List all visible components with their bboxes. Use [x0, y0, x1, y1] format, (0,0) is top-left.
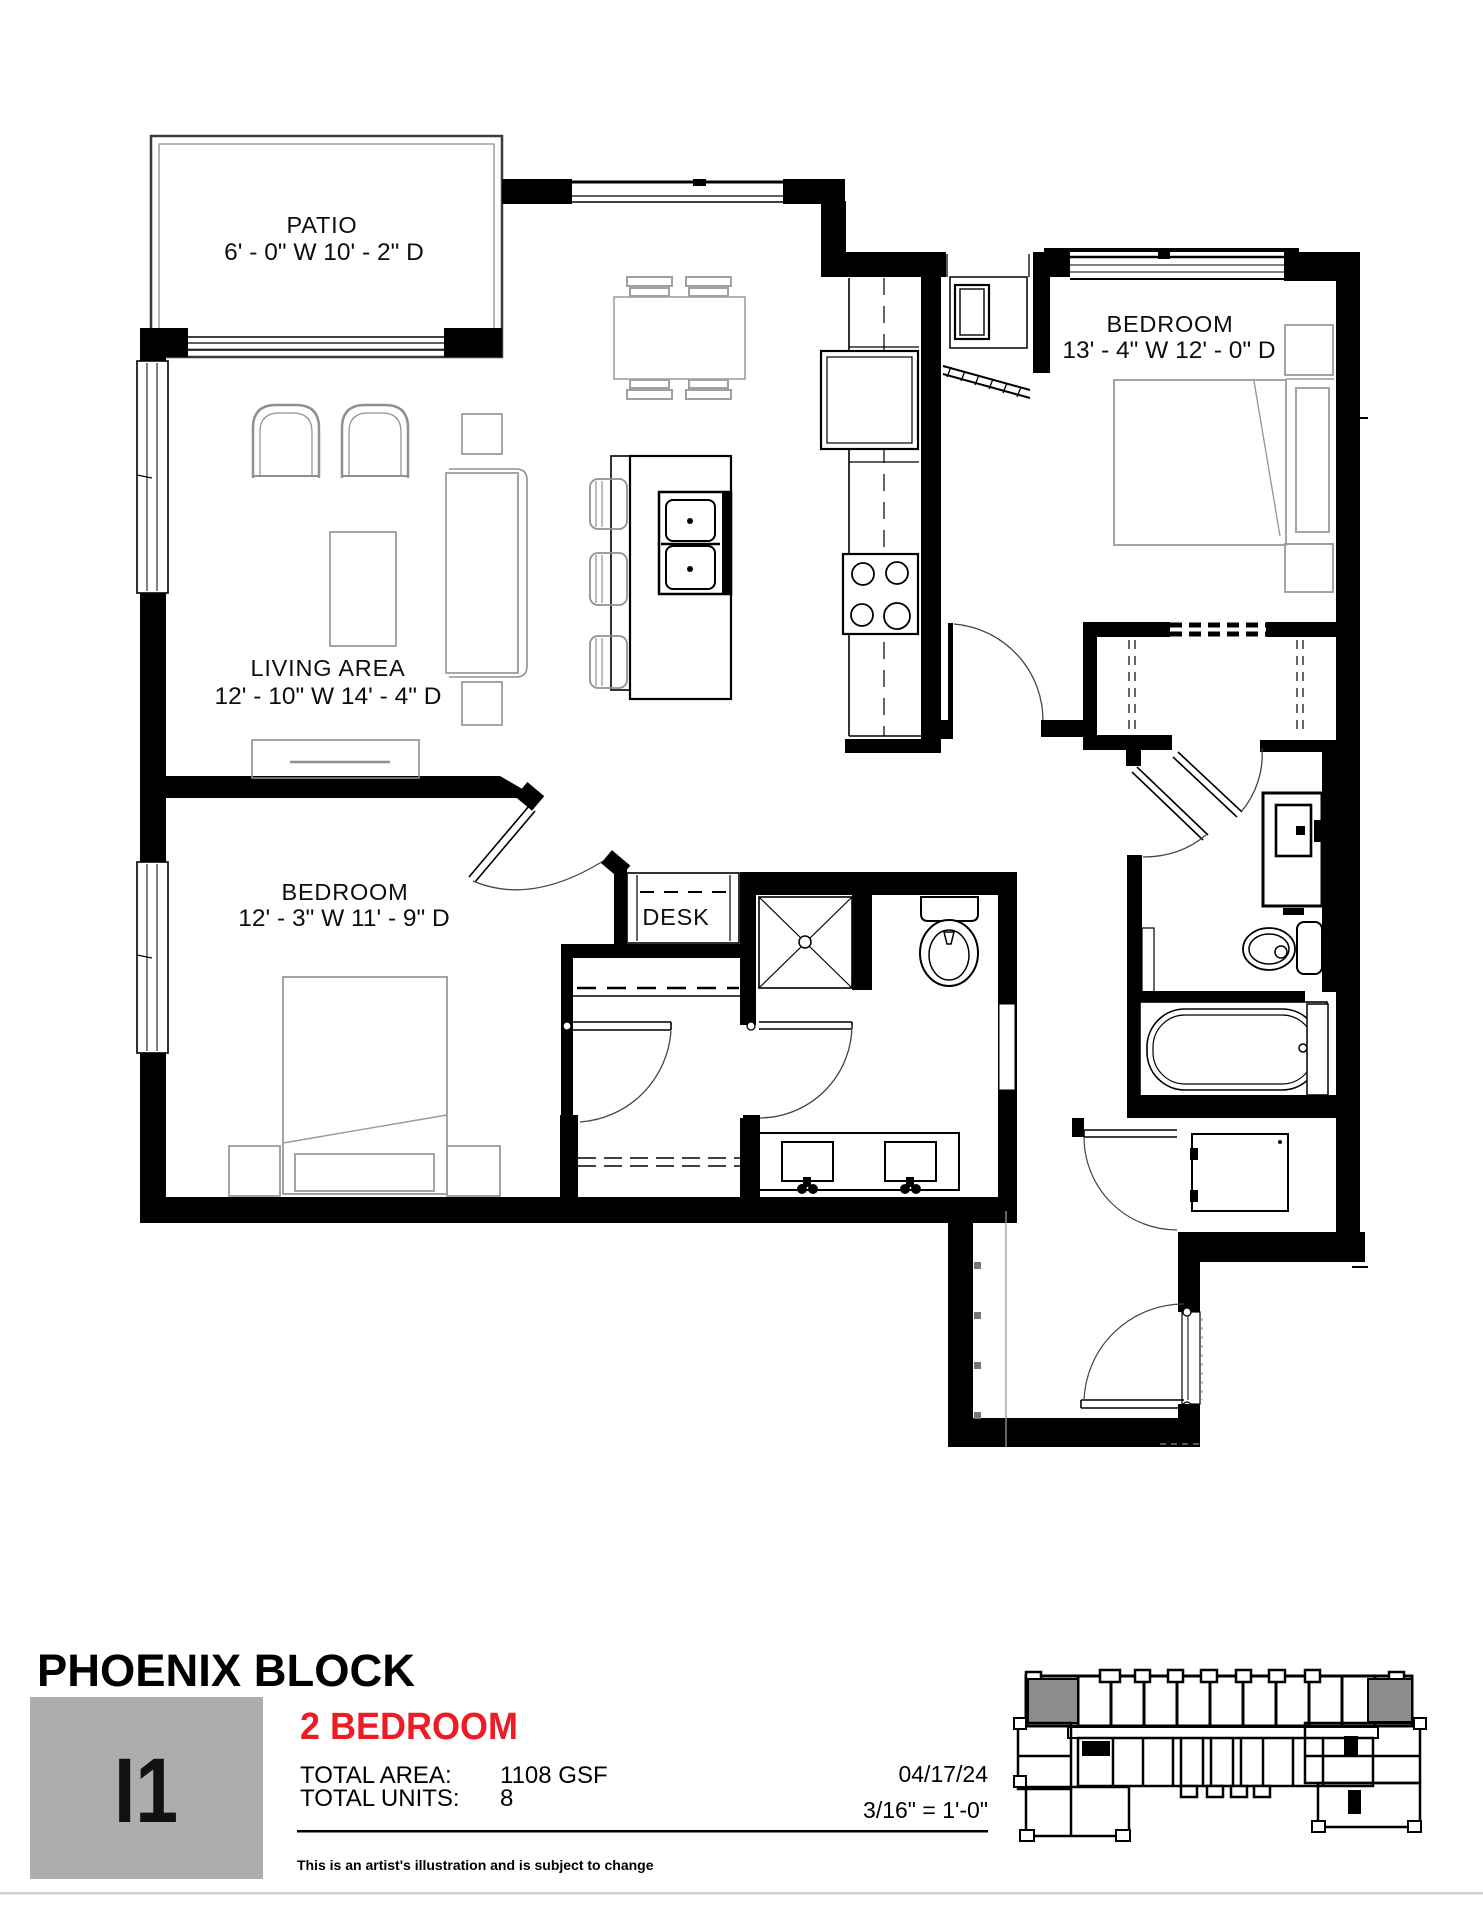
svg-text:12' - 3" W 11' - 9" D: 12' - 3" W 11' - 9" D [238, 905, 449, 932]
svg-text:1108 GSF: 1108 GSF [500, 1762, 608, 1789]
svg-text:LIVING AREA: LIVING AREA [250, 655, 405, 681]
svg-text:TOTAL UNITS:: TOTAL UNITS: [300, 1785, 460, 1812]
svg-text:8: 8 [500, 1785, 513, 1812]
svg-text:13' - 4" W 12' - 0" D: 13' - 4" W 12' - 0" D [1062, 337, 1275, 364]
svg-text:I1: I1 [114, 1740, 178, 1842]
svg-text:This is an artist's illustrati: This is an artist's illustration and is … [297, 1857, 654, 1873]
svg-text:6' - 0" W 10' - 2" D: 6' - 0" W 10' - 2" D [224, 239, 424, 266]
svg-text:PHOENIX BLOCK: PHOENIX BLOCK [37, 1645, 416, 1696]
svg-text:04/17/24: 04/17/24 [898, 1761, 988, 1787]
svg-text:PATIO: PATIO [286, 212, 357, 238]
svg-text:2 BEDROOM: 2 BEDROOM [300, 1706, 518, 1748]
svg-text:3/16" = 1'-0": 3/16" = 1'-0" [863, 1797, 988, 1823]
svg-text:12' - 10" W 14' - 4" D: 12' - 10" W 14' - 4" D [215, 683, 442, 710]
svg-text:BEDROOM: BEDROOM [1106, 311, 1233, 337]
svg-text:BEDROOM: BEDROOM [281, 879, 408, 905]
svg-text:DESK: DESK [642, 904, 709, 930]
